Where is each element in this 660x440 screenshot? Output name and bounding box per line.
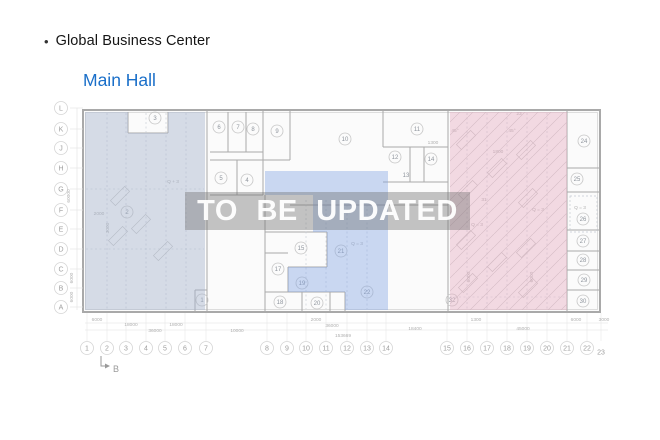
- grid-row-label: A: [59, 305, 64, 312]
- room-number: 11: [414, 127, 421, 133]
- grid-col-label: 6: [183, 346, 187, 353]
- grid-col-label: 10: [302, 346, 310, 353]
- dimension-text: 2000: [311, 317, 322, 323]
- grid-row-label: E: [59, 227, 64, 234]
- room-number: 14: [428, 157, 435, 163]
- dimension-text: 36000: [148, 328, 162, 334]
- watermark-text: TO BE UPDATED: [197, 195, 458, 228]
- room-number: 25: [574, 177, 581, 183]
- dimension-text: 6000: [69, 291, 75, 302]
- section-marker-label: B: [113, 364, 119, 374]
- grid-row-label: J: [59, 146, 63, 153]
- grid-col-label: 4: [144, 346, 148, 353]
- room-number: 10: [342, 137, 349, 143]
- dimension-text: 18000: [169, 322, 183, 328]
- grid-row-label: G: [58, 187, 63, 194]
- dimension-text: 153669: [335, 333, 351, 339]
- grid-row-label: L: [59, 106, 63, 113]
- dimension-text: 60000: [66, 189, 72, 203]
- grid-col-label: 9: [285, 346, 289, 353]
- plan-annotation: 1300: [428, 140, 439, 146]
- room-number: 18: [277, 300, 284, 306]
- room-number: 13: [403, 173, 410, 179]
- room-number: 26: [580, 217, 587, 223]
- room-number: 30: [580, 299, 587, 305]
- dimension-text: 36000: [325, 323, 339, 329]
- dimension-text: 6000: [571, 317, 582, 323]
- grid-row-label: C: [58, 267, 63, 274]
- room-number: 12: [392, 155, 399, 161]
- dimension-text: 18400: [408, 326, 422, 332]
- grid-col-label: 22: [583, 346, 591, 353]
- dimension-text: 6000: [69, 272, 75, 283]
- dimension-text: 45000: [516, 326, 530, 332]
- grid-col-label: 21: [563, 346, 571, 353]
- grid-col-label: 7: [204, 346, 208, 353]
- grid-col-label: 8: [265, 346, 269, 353]
- grid-col-label: 3: [124, 346, 128, 353]
- grid-col-label: 13: [363, 346, 371, 353]
- grid-col-label: 15: [443, 346, 451, 353]
- room-number: 27: [580, 239, 587, 245]
- section-marker-line: [101, 356, 105, 366]
- dimension-text: 3000: [599, 317, 610, 323]
- grid-col-label: 17: [483, 346, 491, 353]
- grid-row-label: K: [59, 127, 64, 134]
- plan-annotation: Q = 3: [574, 205, 586, 211]
- grid-col-label: 11: [322, 346, 329, 353]
- grid-row-label: D: [58, 247, 63, 254]
- grid-row-label: H: [58, 166, 63, 173]
- grid-col-label: 18: [503, 346, 511, 353]
- grid-col-label: 5: [163, 346, 167, 353]
- grid-col-label: 1: [85, 346, 89, 353]
- grid-col-label: 16: [463, 346, 471, 353]
- room-number: 28: [580, 258, 587, 264]
- section-marker-arrow-icon: [105, 364, 110, 369]
- dimension-text: 1300: [471, 317, 482, 323]
- room-number: 17: [275, 267, 282, 273]
- grid-col-label: 23: [597, 350, 605, 357]
- room-number: 15: [298, 246, 305, 252]
- room-number: 24: [581, 139, 588, 145]
- watermark-band: TO BE UPDATED: [185, 192, 470, 230]
- dimension-text: 18000: [124, 322, 138, 328]
- grid-col-label: 2: [105, 346, 109, 353]
- grid-col-label: 19: [523, 346, 531, 353]
- dimension-text: 6000: [92, 317, 103, 323]
- dimension-text: 10000: [230, 328, 244, 334]
- grid-row-label: B: [59, 286, 64, 293]
- room-number: 29: [581, 278, 588, 284]
- grid-col-label: 12: [343, 346, 351, 353]
- grid-col-label: 20: [543, 346, 551, 353]
- room-number: 20: [314, 301, 321, 307]
- grid-col-label: 14: [382, 346, 390, 353]
- grid-row-label: F: [59, 208, 63, 215]
